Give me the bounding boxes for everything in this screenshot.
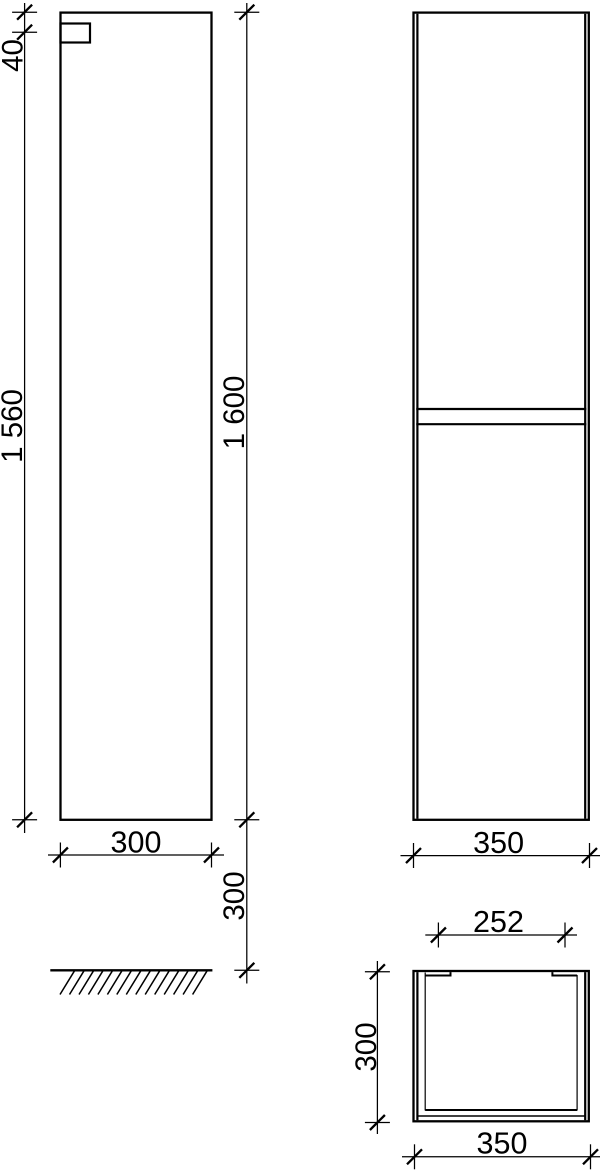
svg-text:300: 300 xyxy=(350,1022,383,1071)
svg-text:300: 300 xyxy=(111,826,162,860)
svg-text:40: 40 xyxy=(0,39,29,72)
svg-text:350: 350 xyxy=(473,826,524,860)
svg-text:1 560: 1 560 xyxy=(0,389,29,463)
svg-text:1 600: 1 600 xyxy=(218,376,251,450)
svg-text:300: 300 xyxy=(218,871,251,920)
svg-text:252: 252 xyxy=(473,905,524,939)
svg-text:350: 350 xyxy=(477,1127,528,1161)
